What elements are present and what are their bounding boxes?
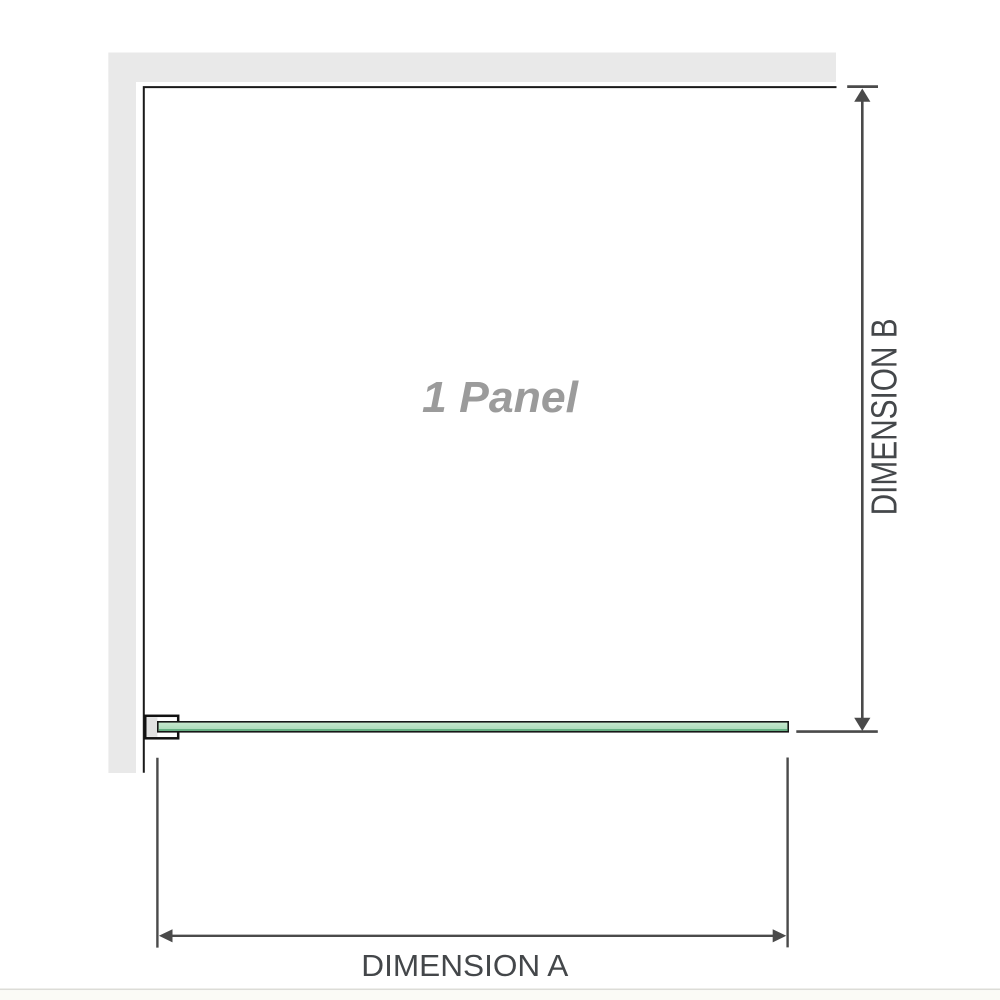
svg-text:DIMENSION B: DIMENSION B [863,318,904,515]
svg-text:DIMENSION A: DIMENSION A [361,949,569,983]
svg-text:1 Panel: 1 Panel [422,374,579,422]
